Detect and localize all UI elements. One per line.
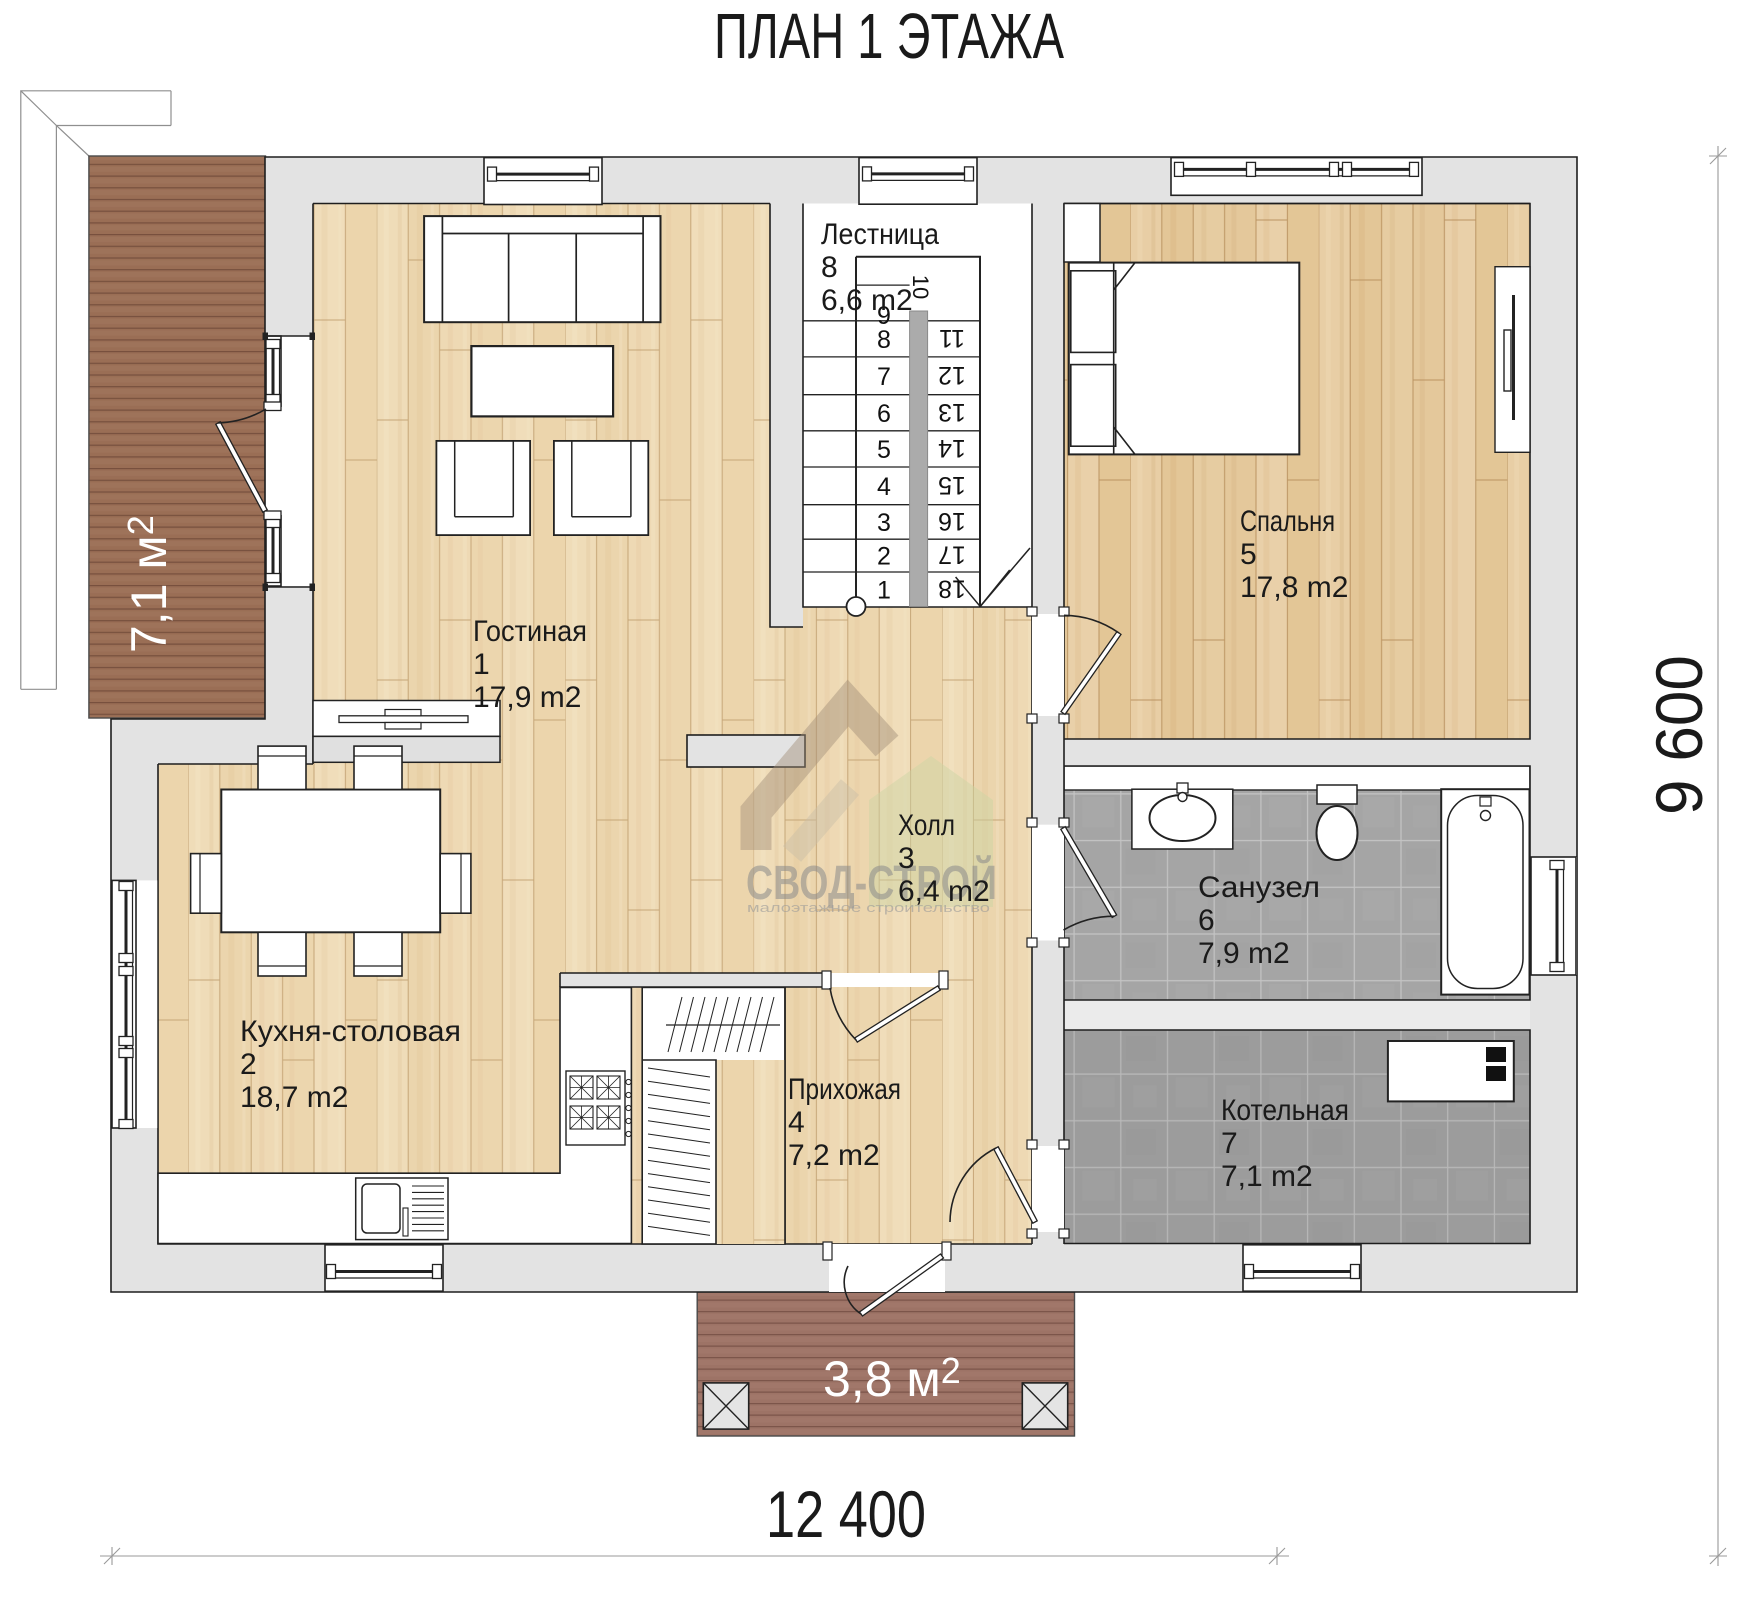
svg-text:ПЛАН 1 ЭТАЖА: ПЛАН 1 ЭТАЖА [714,0,1064,72]
svg-text:4: 4 [788,1106,805,1139]
svg-text:Холл: Холл [898,809,955,842]
svg-text:6,4 m2: 6,4 m2 [898,875,990,908]
svg-text:8: 8 [877,326,891,354]
svg-text:11: 11 [939,324,965,352]
svg-text:5: 5 [877,436,891,464]
svg-text:2: 2 [877,543,891,571]
svg-text:13: 13 [938,398,966,426]
svg-text:3: 3 [877,509,891,537]
svg-text:3: 3 [898,842,915,875]
svg-text:17,9 m2: 17,9 m2 [473,681,581,714]
svg-text:Прихожая: Прихожая [788,1073,901,1106]
svg-text:12: 12 [938,361,966,389]
svg-text:3,8 м2: 3,8 м2 [823,1350,961,1407]
svg-text:7,1 м2: 7,1 м2 [120,515,177,653]
svg-text:Котельная: Котельная [1221,1094,1349,1127]
svg-text:Спальня: Спальня [1240,505,1335,538]
svg-text:Лестница: Лестница [821,218,939,251]
svg-text:18: 18 [938,574,966,602]
svg-text:6: 6 [877,400,891,428]
svg-text:5: 5 [1240,538,1257,571]
svg-text:2: 2 [240,1048,257,1081]
svg-text:6: 6 [1198,904,1215,937]
svg-text:Гостиная: Гостиная [473,615,587,648]
svg-text:7,9 m2: 7,9 m2 [1198,937,1290,970]
svg-text:6,6 m2: 6,6 m2 [821,284,913,317]
svg-text:8: 8 [821,251,838,284]
svg-text:7: 7 [1221,1127,1238,1160]
svg-text:1: 1 [877,576,891,604]
svg-text:12 400: 12 400 [766,1477,926,1551]
svg-text:17,8 m2: 17,8 m2 [1240,571,1348,604]
svg-text:16: 16 [938,507,966,535]
svg-text:7,2 m2: 7,2 m2 [788,1139,880,1172]
svg-text:7,1 m2: 7,1 m2 [1221,1160,1313,1193]
svg-text:4: 4 [877,473,891,501]
svg-text:9 600: 9 600 [1642,655,1716,815]
svg-text:15: 15 [938,471,966,499]
svg-text:1: 1 [473,648,490,681]
svg-text:14: 14 [938,434,966,462]
svg-text:Кухня-столовая: Кухня-столовая [240,1015,461,1048]
svg-text:17: 17 [938,541,966,569]
svg-text:Санузел: Санузел [1198,871,1320,904]
svg-text:18,7 m2: 18,7 m2 [240,1081,348,1114]
svg-text:7: 7 [877,363,891,391]
